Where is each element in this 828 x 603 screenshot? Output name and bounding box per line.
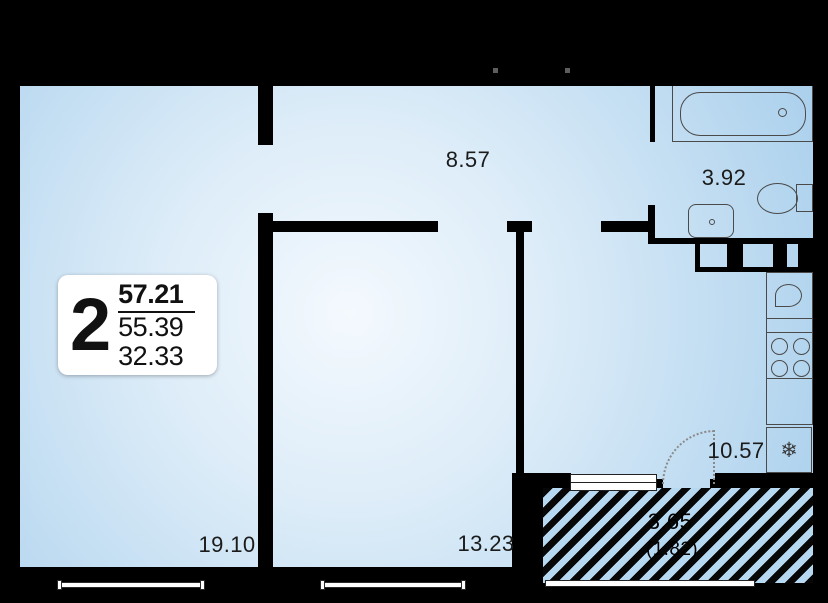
wall-balcony-right: [715, 473, 813, 488]
stove-burner-icon: [771, 338, 788, 355]
total-area: 57.21: [118, 279, 195, 313]
duct-shaft-wall: [695, 244, 700, 267]
wall-room-kitchen: [516, 231, 524, 473]
floorplan-screenshot: { "apartment_card": { "rooms_count": "2"…: [0, 0, 828, 603]
balcony-railing: [545, 580, 755, 587]
wall-outer-left: [14, 80, 20, 588]
rooms-count: 2: [70, 294, 109, 357]
window-end-cap: [320, 580, 325, 590]
room-area-label-room: 13.23: [457, 531, 514, 557]
apartment-info-card: 2 57.21 55.39 32.33: [58, 275, 217, 375]
toilet-tank: [796, 184, 813, 212]
balcony-window: [570, 474, 657, 491]
duct-shaft-wall: [727, 244, 743, 267]
wall-hallway-room: [273, 221, 438, 232]
window-end-cap: [200, 580, 205, 590]
dimension-dot: [493, 68, 498, 73]
room-area-label-hallway: 8.57: [446, 147, 490, 173]
stove-burner-icon: [793, 338, 810, 355]
living-area: 32.33: [118, 342, 195, 371]
counter-divider: [766, 318, 813, 319]
snowflake-icon: ❄: [780, 440, 798, 461]
kitchen-sink-icon: [775, 284, 802, 307]
areas-column: 57.21 55.39 32.33: [118, 279, 195, 371]
wall-bedroom-lower: [258, 213, 273, 567]
window-room: [323, 582, 463, 588]
room-area-label-kitchen: 10.57: [707, 438, 764, 464]
bathroom-sink-drain: [709, 219, 715, 225]
duct-shaft-wall: [798, 244, 813, 267]
wall-hallway-kitchen: [601, 221, 655, 232]
secondary-area: 55.39: [118, 313, 195, 342]
stove-burner-icon: [793, 360, 810, 377]
window-end-cap: [461, 580, 466, 590]
duct-shaft-wall: [773, 244, 787, 267]
room-area-label-balcony: 3.65: [648, 509, 692, 535]
balcony-hatched-area: [543, 488, 813, 583]
fridge: ❄: [766, 427, 812, 473]
wall-bedroom-upper: [258, 86, 273, 145]
counter-divider: [766, 378, 813, 379]
counter-divider: [766, 332, 813, 333]
room-area-label-balcony-reduced: (1.82): [646, 539, 698, 561]
toilet: [757, 183, 798, 214]
window-glass-line: [571, 482, 656, 483]
bathtub-drain: [778, 108, 787, 117]
room-area-label-bedroom: 19.10: [198, 532, 255, 558]
dimension-dot: [565, 68, 570, 73]
stove-burner-icon: [771, 360, 788, 377]
room-area-label-bathroom: 3.92: [702, 165, 746, 191]
wall-balcony-left-pier: [512, 473, 543, 588]
bathtub-basin: [680, 92, 806, 136]
wall-outer-right: [813, 80, 828, 488]
window-bedroom: [60, 582, 202, 588]
wall-bathroom-left-upper: [650, 86, 655, 142]
window-end-cap: [57, 580, 62, 590]
